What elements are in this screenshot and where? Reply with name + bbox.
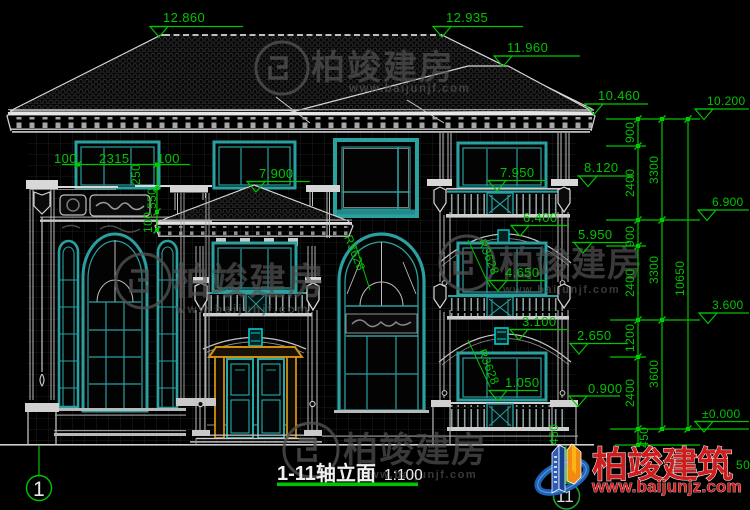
svg-text:1200: 1200	[623, 324, 637, 352]
svg-text:柏竣建房: 柏竣建房	[173, 260, 325, 302]
svg-text:柏竣建房: 柏竣建房	[311, 48, 455, 87]
svg-text:2400: 2400	[623, 269, 637, 297]
svg-text:11.960: 11.960	[507, 40, 548, 55]
svg-text:12.860: 12.860	[163, 10, 205, 25]
svg-text:3300: 3300	[647, 256, 661, 284]
svg-text:7.900: 7.900	[259, 166, 294, 181]
svg-text:900: 900	[623, 122, 637, 143]
svg-text:6.400: 6.400	[523, 210, 558, 225]
svg-text:1: 1	[33, 478, 45, 501]
svg-text:10.460: 10.460	[598, 88, 640, 103]
svg-text:450: 450	[547, 424, 561, 445]
svg-text:10650: 10650	[673, 261, 687, 296]
svg-text:100: 100	[141, 212, 155, 233]
svg-text:12.935: 12.935	[446, 10, 488, 25]
svg-text:900: 900	[623, 226, 637, 247]
svg-text:www.baijunjf.com: www.baijunjf.com	[175, 302, 310, 316]
svg-text:8.120: 8.120	[584, 160, 619, 175]
svg-text:5.950: 5.950	[578, 227, 613, 242]
svg-text:2400: 2400	[623, 379, 637, 407]
svg-text:1-11轴立面: 1-11轴立面	[277, 461, 376, 485]
svg-text:3.600: 3.600	[712, 298, 744, 312]
svg-text:2400: 2400	[623, 169, 637, 197]
svg-text:www.baijunjf.com: www.baijunjf.com	[348, 83, 470, 95]
svg-text:50: 50	[736, 458, 750, 472]
svg-text:10.200: 10.200	[707, 94, 746, 108]
svg-text:7.950: 7.950	[500, 165, 535, 180]
svg-text:1.050: 1.050	[505, 375, 540, 390]
svg-text:3.100: 3.100	[522, 314, 557, 329]
svg-text:100: 100	[54, 151, 77, 166]
svg-text:2315: 2315	[99, 151, 130, 166]
svg-text:250: 250	[129, 164, 143, 185]
svg-text:3300: 3300	[647, 156, 661, 184]
svg-text:1:100: 1:100	[384, 467, 423, 484]
svg-text:100: 100	[157, 151, 180, 166]
svg-text:±0.000: ±0.000	[702, 407, 740, 421]
svg-text:4.650: 4.650	[505, 265, 540, 280]
svg-text:3600: 3600	[647, 360, 661, 388]
svg-text:2.650: 2.650	[577, 328, 612, 343]
svg-text:www.baijunjf.com: www.baijunjf.com	[502, 284, 620, 296]
svg-text:6.900: 6.900	[712, 195, 744, 209]
svg-text:www.baijunjz.com: www.baijunjz.com	[591, 477, 742, 496]
svg-text:0.900: 0.900	[588, 381, 623, 396]
svg-text:550: 550	[145, 188, 159, 209]
